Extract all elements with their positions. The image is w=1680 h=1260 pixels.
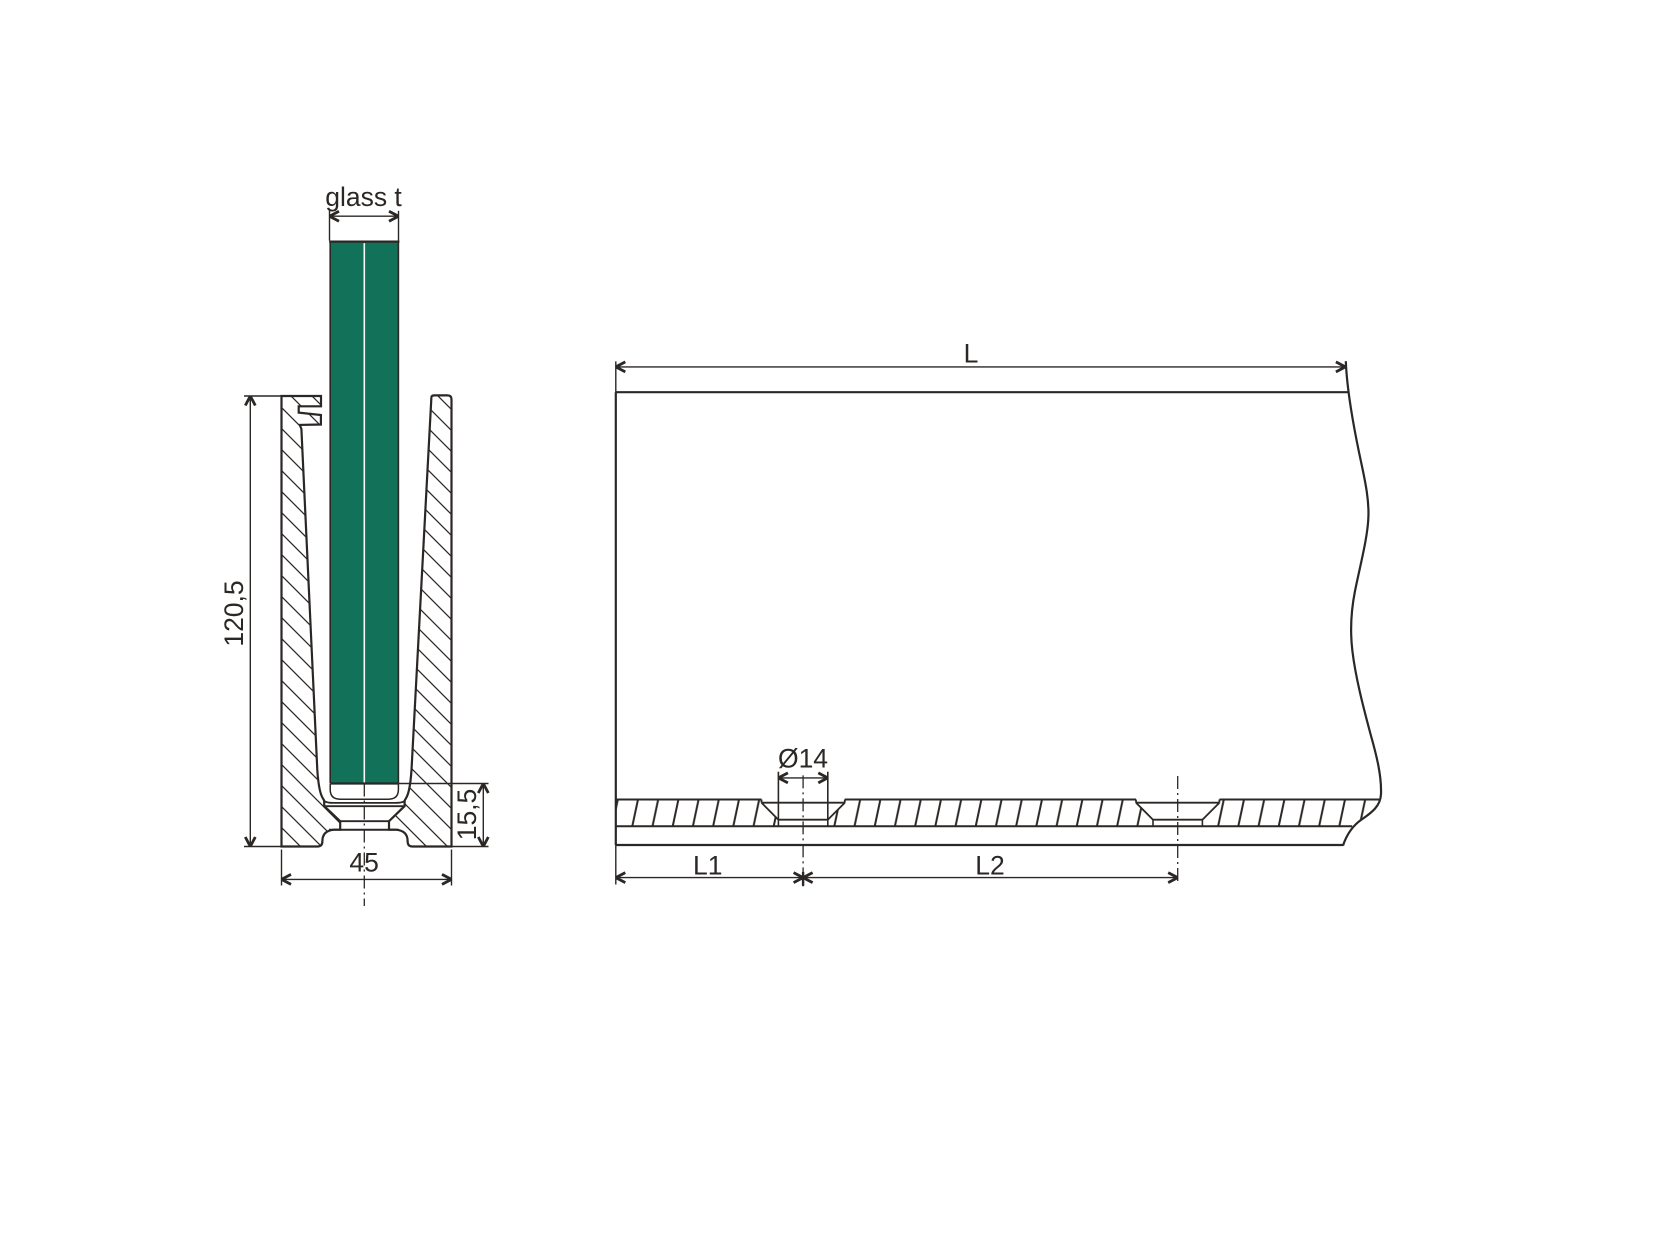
svg-text:Ø14: Ø14 xyxy=(778,743,828,773)
svg-text:15,5: 15,5 xyxy=(452,789,482,841)
svg-text:L1: L1 xyxy=(693,851,722,881)
svg-text:120,5: 120,5 xyxy=(219,580,249,646)
svg-text:L2: L2 xyxy=(975,851,1004,881)
svg-text:L: L xyxy=(964,339,979,369)
svg-text:glass t: glass t xyxy=(325,182,402,212)
svg-text:45: 45 xyxy=(349,848,378,878)
